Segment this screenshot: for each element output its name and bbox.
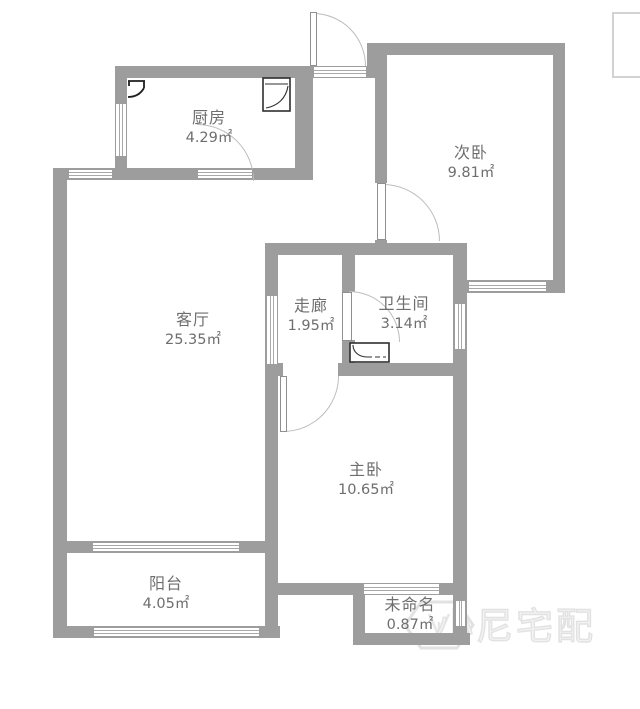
entrance-door-leaf xyxy=(310,12,317,66)
room-area: 4.05㎡ xyxy=(106,597,226,612)
window xyxy=(92,542,240,552)
wall-segment xyxy=(265,243,467,255)
wall-segment xyxy=(553,55,565,293)
wall-segment xyxy=(375,78,387,183)
neighbor-wall-fragment xyxy=(612,12,640,78)
wall-segment xyxy=(440,583,453,595)
window xyxy=(93,627,260,637)
wall-segment xyxy=(278,583,363,595)
wall-segment xyxy=(338,363,453,376)
window xyxy=(68,169,113,179)
window xyxy=(115,103,127,157)
wall-segment xyxy=(353,633,470,645)
room-area: 3.14㎡ xyxy=(344,317,464,332)
room-name: 次卧 xyxy=(411,145,531,161)
washbasin-icon xyxy=(349,342,390,363)
room-area: 9.81㎡ xyxy=(411,166,531,181)
wall-segment xyxy=(53,168,67,638)
room-name: 未命名 xyxy=(350,597,470,613)
room-name: 厨房 xyxy=(149,110,269,126)
second-bedroom-door-swing xyxy=(383,184,440,241)
room-label-kitchen: 厨房 4.29㎡ xyxy=(149,110,269,146)
window xyxy=(468,281,547,292)
entrance-threshold xyxy=(313,66,367,78)
stove-icon xyxy=(127,79,146,100)
room-label-living-room: 客厅 25.35㎡ xyxy=(133,312,253,348)
master-bedroom-door-swing xyxy=(283,376,339,432)
room-name: 客厅 xyxy=(133,312,253,328)
room-area: 0.87㎡ xyxy=(350,618,470,633)
wall-segment xyxy=(342,255,355,292)
entrance-door-swing xyxy=(313,13,366,66)
room-label-unnamed: 未命名 0.87㎡ xyxy=(350,597,470,633)
room-label-balcony: 阳台 4.05㎡ xyxy=(106,576,226,612)
kitchen-sink-icon xyxy=(262,77,291,112)
kitchen-door-threshold xyxy=(197,169,253,179)
master-bedroom-door-leaf xyxy=(280,376,287,432)
room-name: 主卧 xyxy=(306,462,426,478)
room-area: 4.29㎡ xyxy=(149,131,269,146)
room-label-bathroom: 卫生间 3.14㎡ xyxy=(344,296,464,332)
wall-segment xyxy=(380,43,565,55)
wall-segment xyxy=(295,78,313,168)
room-label-master-bedroom: 主卧 10.65㎡ xyxy=(306,462,426,498)
room-name: 阳台 xyxy=(106,576,226,592)
room-area: 25.35㎡ xyxy=(133,333,253,348)
room-name: 卫生间 xyxy=(344,296,464,312)
window xyxy=(363,583,440,595)
second-bedroom-door-leaf xyxy=(377,183,386,240)
room-area: 10.65㎡ xyxy=(306,483,426,498)
floorplan-canvas: 小尼宅配 xyxy=(0,0,640,709)
room-label-second-bedroom: 次卧 9.81㎡ xyxy=(411,145,531,181)
